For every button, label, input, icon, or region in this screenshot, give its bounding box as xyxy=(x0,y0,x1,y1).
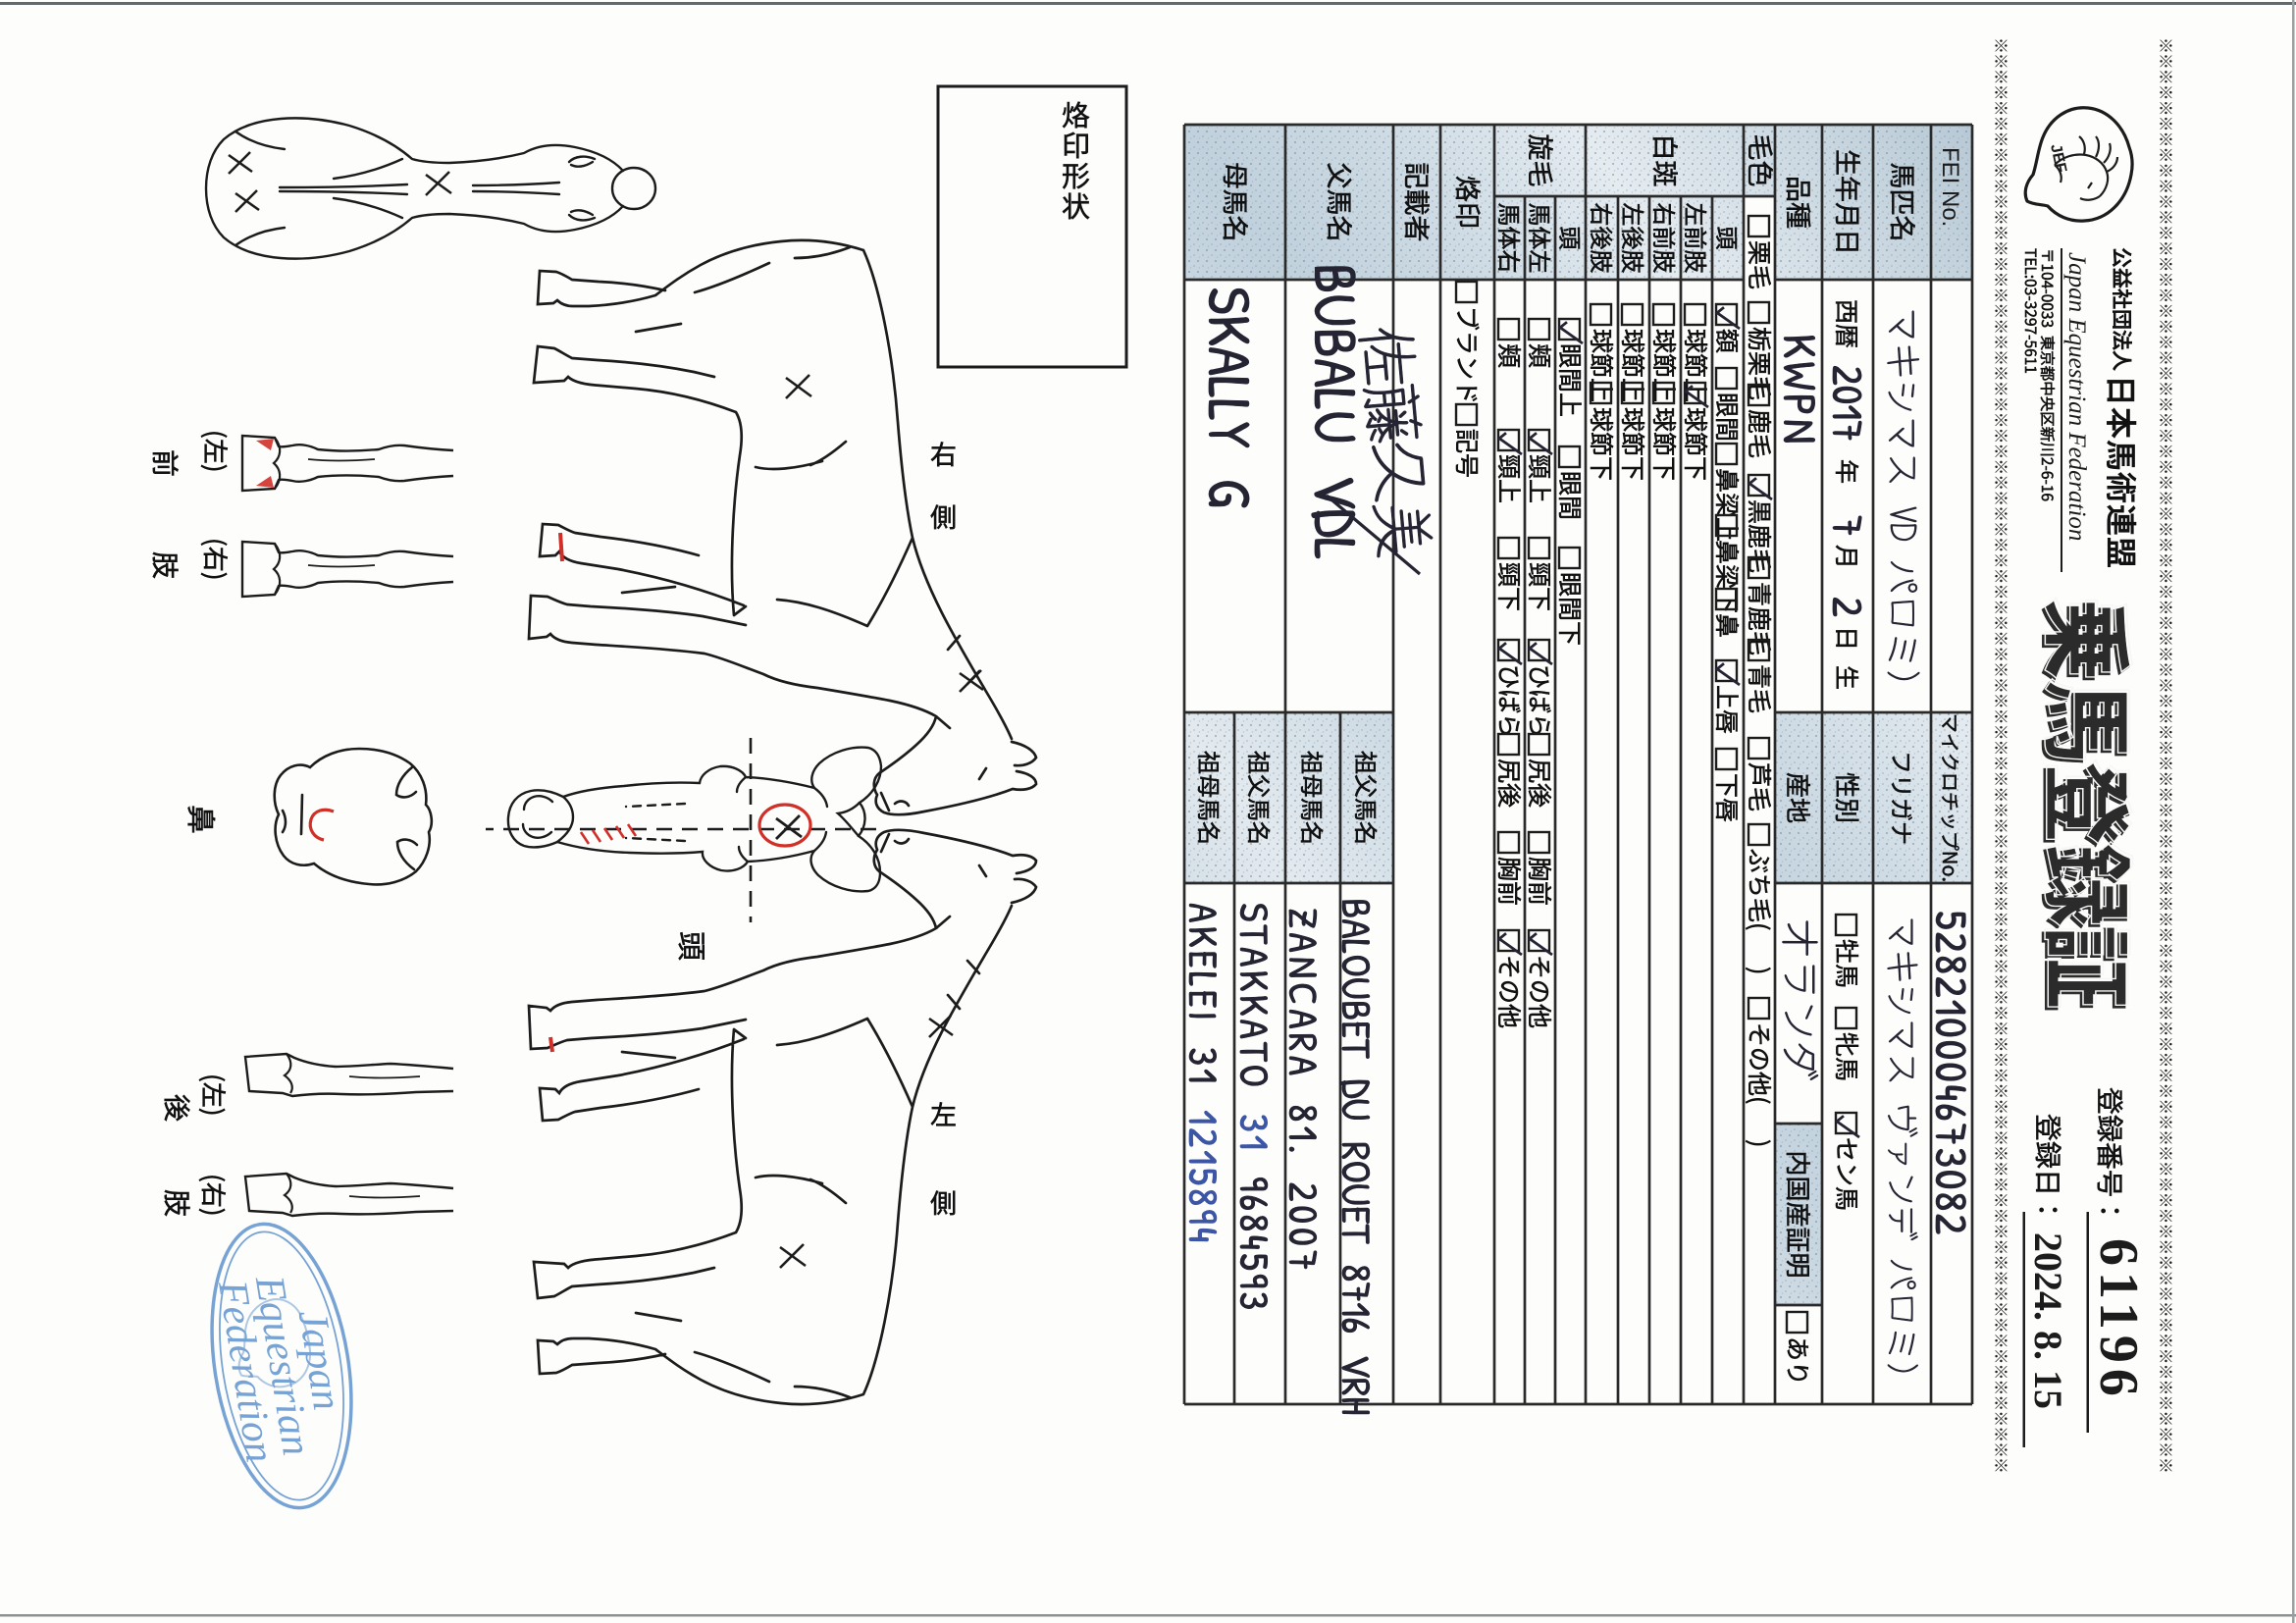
svg-text:61196: 61196 xyxy=(2088,1238,2149,1402)
svg-text:Japan Equestrian Federation: Japan Equestrian Federation xyxy=(2063,252,2090,541)
svg-text:2024. 8. 15: 2024. 8. 15 xyxy=(2026,1232,2070,1409)
svg-text:FEI No.: FEI No. xyxy=(1937,147,1963,227)
